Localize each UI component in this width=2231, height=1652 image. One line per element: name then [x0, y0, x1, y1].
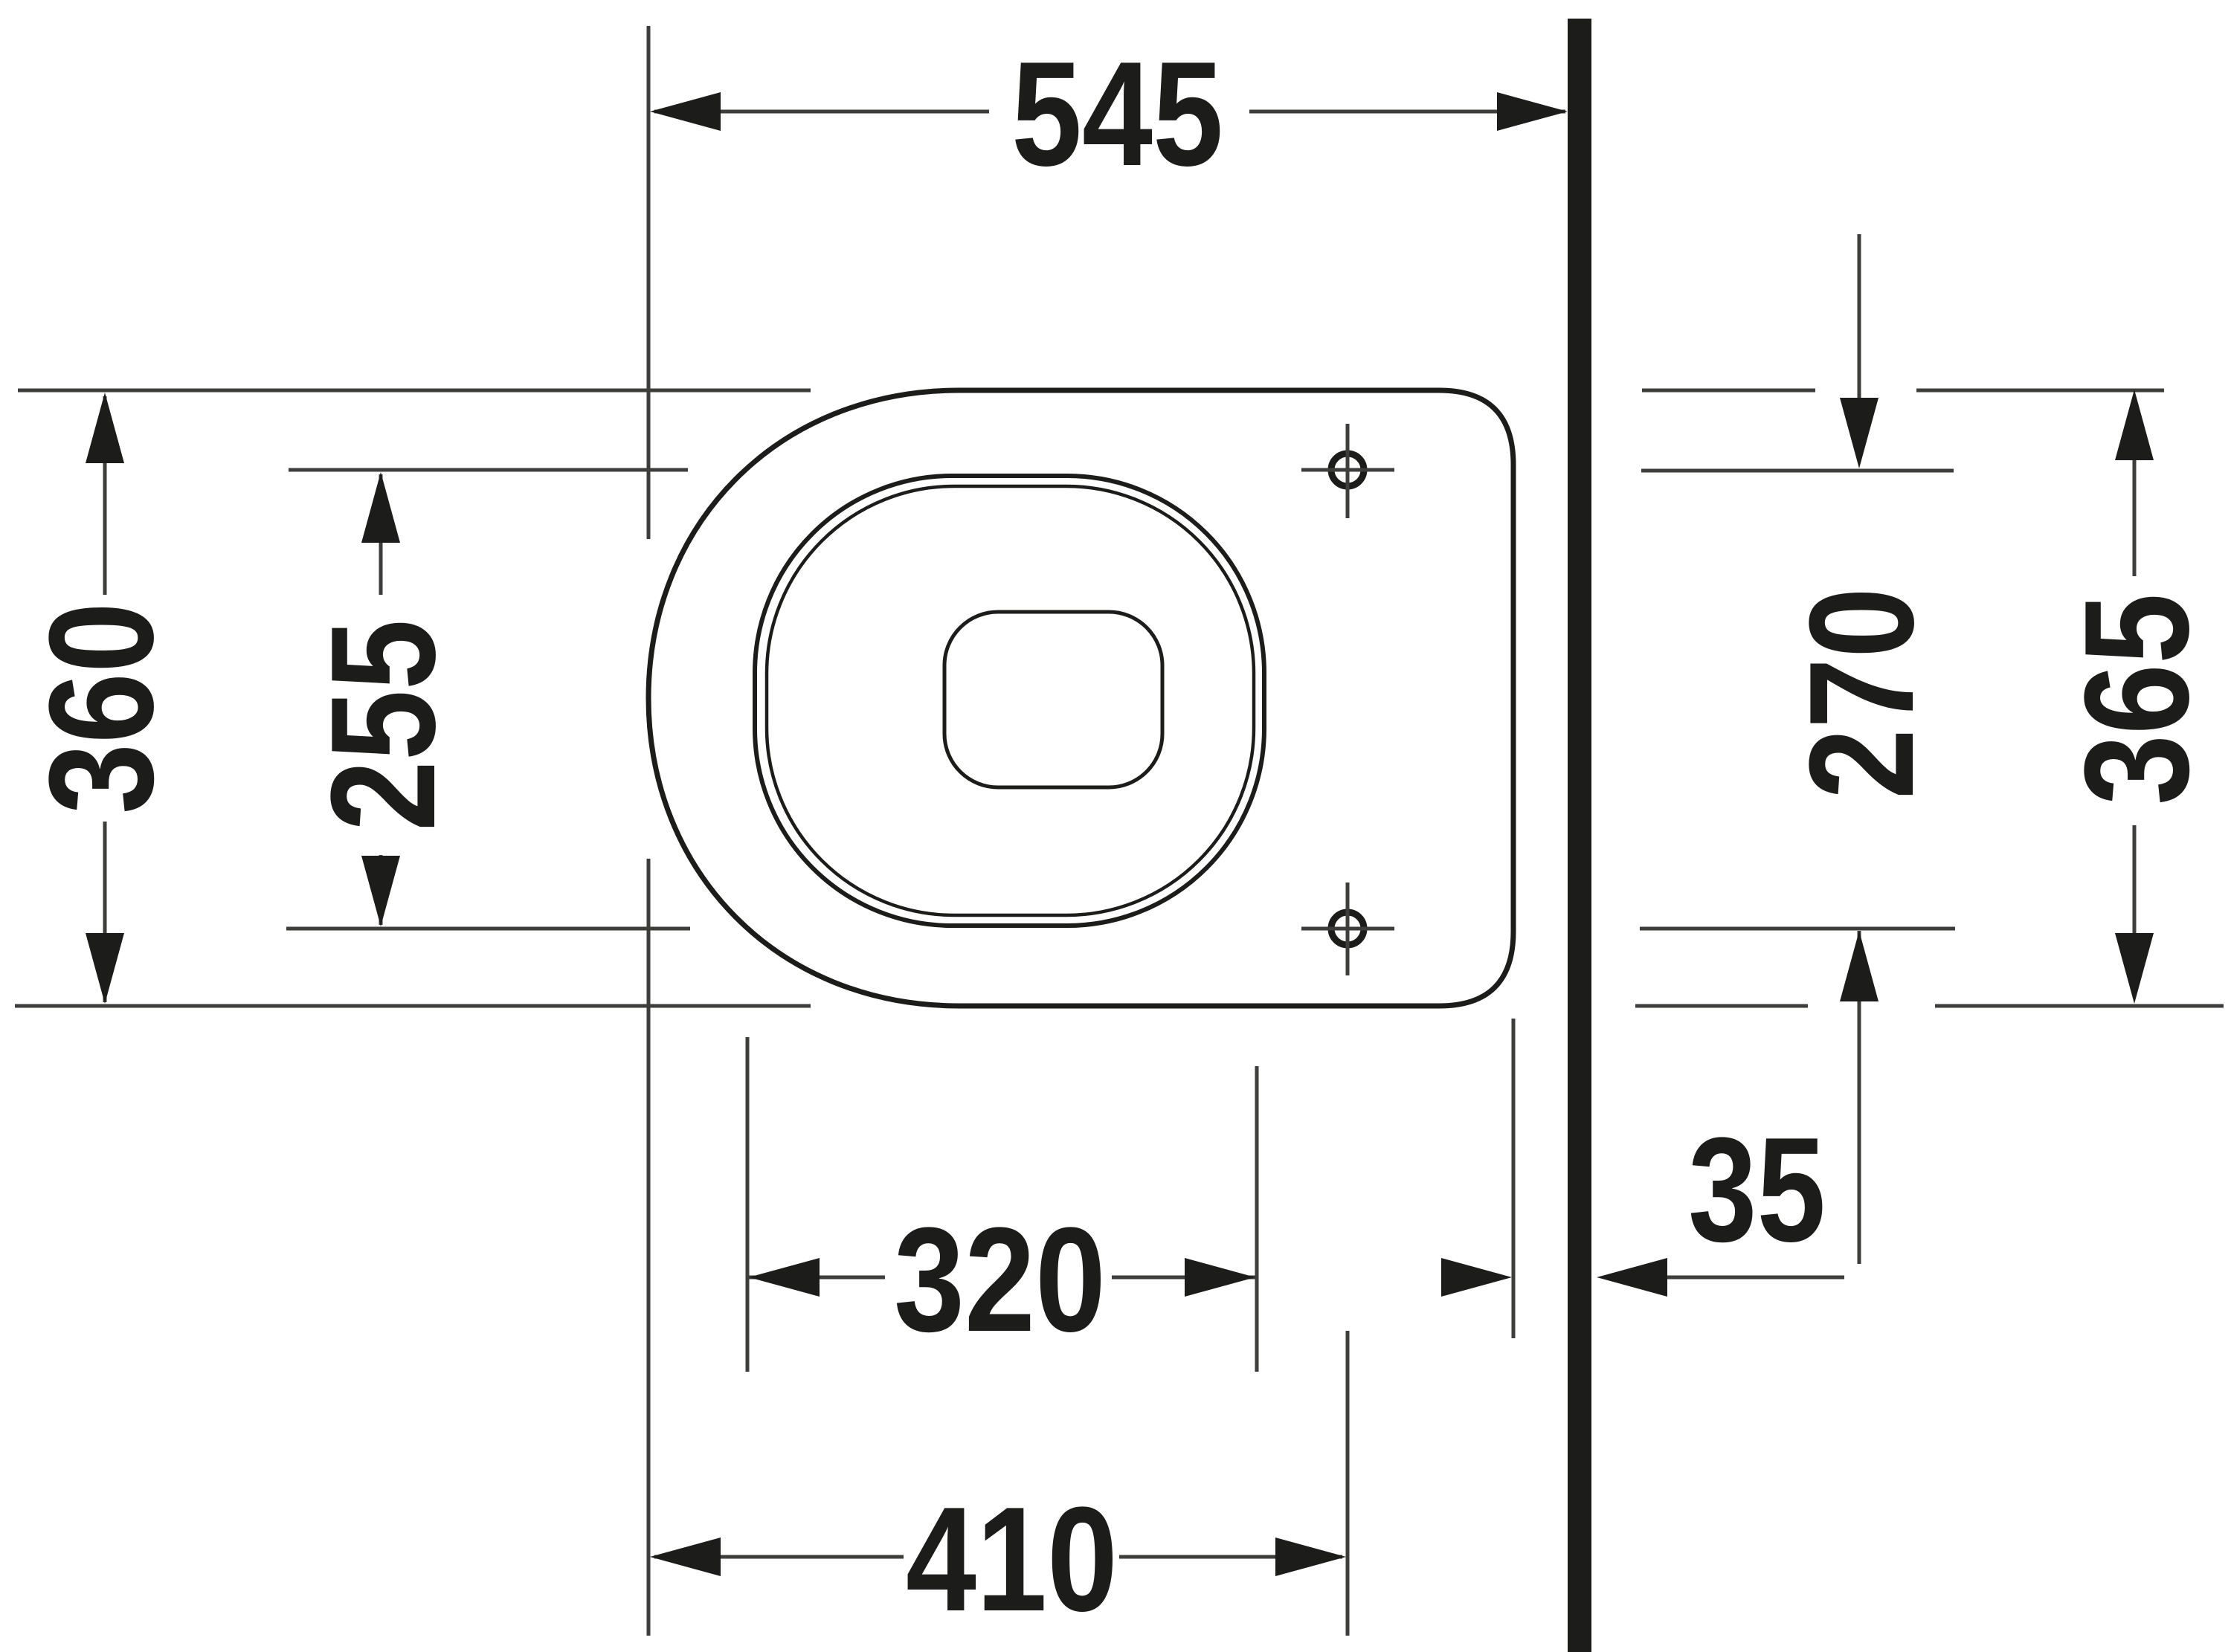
dimension-label-320: 320: [894, 1197, 1106, 1363]
wall-section-line: [1568, 19, 1591, 1652]
dimension-255: 255: [300, 472, 466, 926]
arrowhead-365-bottom: [2115, 933, 2154, 1004]
arrowhead-320-right: [1185, 1258, 1255, 1297]
arrowhead-255-top: [361, 472, 400, 543]
arrowhead-270-bottom: [1840, 931, 1879, 1001]
dimension-365: 365: [2054, 390, 2220, 1004]
dimension-label-255: 255: [300, 619, 466, 831]
dimension-label-410: 410: [906, 1477, 1118, 1642]
technical-drawing-sheet: 545 360 255 270 365: [0, 0, 2231, 1652]
arrowhead-365-top: [2115, 390, 2154, 460]
arrowhead-255-bottom: [361, 856, 400, 926]
dimension-35: 35: [1441, 1107, 1844, 1297]
arrowhead-545-right: [1497, 92, 1568, 131]
dimension-545: 545: [650, 31, 1568, 197]
fixing-hole-marker-top: [1301, 424, 1394, 518]
arrowhead-410-right: [1275, 1538, 1346, 1576]
arrowhead-35-left: [1441, 1258, 1512, 1297]
arrowhead-320-left: [749, 1258, 820, 1297]
seat-rim-inner: [767, 486, 1254, 915]
dimension-label-35: 35: [1688, 1107, 1826, 1273]
dimension-360: 360: [19, 393, 184, 1004]
dimension-label-545: 545: [1011, 31, 1223, 197]
dimension-label-360: 360: [19, 602, 184, 814]
dimension-label-365: 365: [2054, 593, 2220, 805]
arrowhead-545-left: [650, 92, 721, 131]
fixing-hole-marker-bottom: [1301, 883, 1394, 975]
toilet-plan-dimension-drawing: 545 360 255 270 365: [0, 0, 2231, 1652]
bowl-opening: [944, 612, 1162, 787]
seat-rim-outer: [755, 476, 1264, 926]
arrowhead-360-top: [86, 393, 124, 463]
arrowhead-410-left: [650, 1538, 721, 1576]
arrowhead-35-right: [1597, 1258, 1667, 1297]
dimension-410: 410: [650, 1477, 1346, 1642]
dimension-320: 320: [747, 1197, 1257, 1363]
arrowhead-360-bottom: [86, 933, 124, 1004]
dimension-label-270: 270: [1779, 587, 1945, 799]
arrowhead-270-top: [1840, 398, 1879, 468]
